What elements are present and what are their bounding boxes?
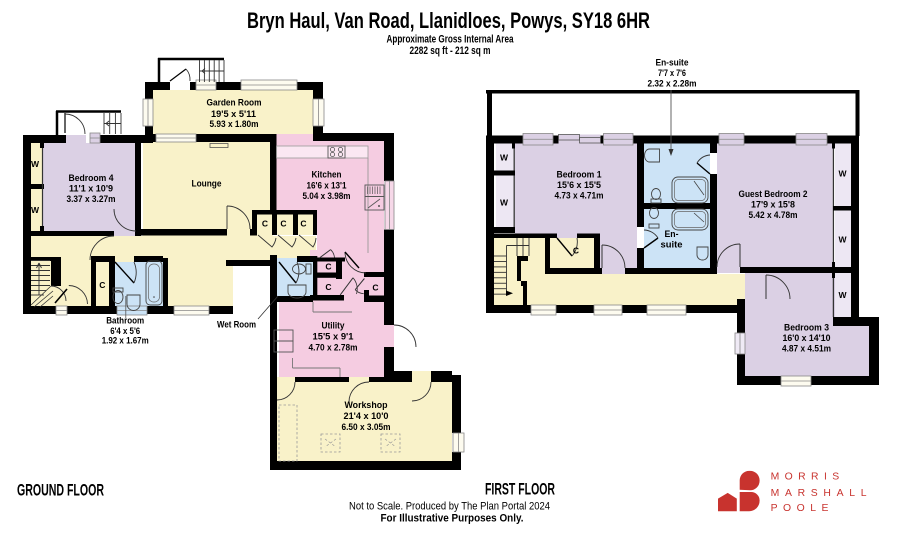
svg-text:Kitchen: Kitchen <box>312 170 342 181</box>
svg-text:W: W <box>31 159 40 169</box>
svg-text:GROUND FLOOR: GROUND FLOOR <box>17 480 104 499</box>
svg-text:Bedroom 1: Bedroom 1 <box>557 170 603 181</box>
svg-text:W: W <box>500 153 509 163</box>
svg-text:MORRIS: MORRIS <box>771 471 845 482</box>
svg-text:4.73 x 4.71m: 4.73 x 4.71m <box>555 191 604 202</box>
svg-text:C: C <box>300 219 306 229</box>
svg-text:2282 sq ft - 212 sq m: 2282 sq ft - 212 sq m <box>410 45 491 57</box>
svg-text:7'7 x 7'6: 7'7 x 7'6 <box>658 68 686 79</box>
svg-text:C: C <box>573 246 579 256</box>
svg-text:11'1 x 10'9: 11'1 x 10'9 <box>69 184 113 195</box>
svg-text:4.87 x 4.51m: 4.87 x 4.51m <box>782 344 831 355</box>
svg-text:2.32 x 2.28m: 2.32 x 2.28m <box>648 79 697 90</box>
svg-text:FIRST FLOOR: FIRST FLOOR <box>485 480 555 499</box>
svg-text:W: W <box>31 205 40 215</box>
svg-text:Utility: Utility <box>322 321 346 332</box>
svg-text:C: C <box>325 282 331 292</box>
svg-text:21'4 x 10'0: 21'4 x 10'0 <box>344 411 389 422</box>
svg-text:3.37 x 3.27m: 3.37 x 3.27m <box>67 194 116 205</box>
svg-text:suite: suite <box>661 240 683 251</box>
svg-text:MARSHALL: MARSHALL <box>771 488 873 499</box>
svg-text:C: C <box>99 280 105 290</box>
svg-text:C: C <box>262 219 268 229</box>
svg-text:C: C <box>280 219 286 229</box>
svg-text:15'6 x 15'5: 15'6 x 15'5 <box>557 180 602 191</box>
svg-text:4.70 x 2.78m: 4.70 x 2.78m <box>309 343 358 354</box>
svg-text:En-: En- <box>665 229 679 240</box>
svg-text:5.04 x 3.98m: 5.04 x 3.98m <box>303 191 351 202</box>
svg-text:W: W <box>500 198 509 208</box>
svg-text:15'5 x 9'1: 15'5 x 9'1 <box>313 332 355 343</box>
svg-text:Bedroom 4: Bedroom 4 <box>69 173 115 184</box>
svg-text:Garden Room: Garden Room <box>207 98 262 109</box>
svg-text:16'0 x 14'10: 16'0 x 14'10 <box>783 333 831 344</box>
svg-text:POOLE: POOLE <box>771 503 834 514</box>
svg-text:Wet Room: Wet Room <box>217 320 256 331</box>
svg-text:W: W <box>838 235 847 245</box>
svg-text:5.93 x 1.80m: 5.93 x 1.80m <box>210 119 259 130</box>
svg-text:6.50 x 3.05m: 6.50 x 3.05m <box>342 422 391 433</box>
svg-text:Bryn Haul, Van Road, Llanidloe: Bryn Haul, Van Road, Llanidloes, Powys, … <box>247 8 650 33</box>
svg-text:17'9 x 15'8: 17'9 x 15'8 <box>751 200 795 211</box>
svg-text:Not to Scale. Produced by The: Not to Scale. Produced by The Plan Porta… <box>349 501 550 513</box>
svg-text:W: W <box>838 290 847 300</box>
svg-text:W: W <box>838 169 847 179</box>
svg-text:Bedroom 3: Bedroom 3 <box>784 323 829 334</box>
svg-text:En-suite: En-suite <box>656 58 689 69</box>
svg-text:C: C <box>372 282 378 292</box>
svg-text:Guest Bedroom 2: Guest Bedroom 2 <box>739 189 808 200</box>
svg-text:Approximate Gross Internal Are: Approximate Gross Internal Area <box>387 34 515 46</box>
svg-text:C: C <box>325 262 331 272</box>
svg-text:Workshop: Workshop <box>345 400 388 411</box>
svg-text:5.42 x 4.78m: 5.42 x 4.78m <box>749 210 798 221</box>
svg-text:For Illustrative Purposes Only: For Illustrative Purposes Only. <box>381 513 524 525</box>
svg-text:Lounge: Lounge <box>192 179 222 190</box>
svg-text:1.92 x 1.67m: 1.92 x 1.67m <box>102 336 149 347</box>
